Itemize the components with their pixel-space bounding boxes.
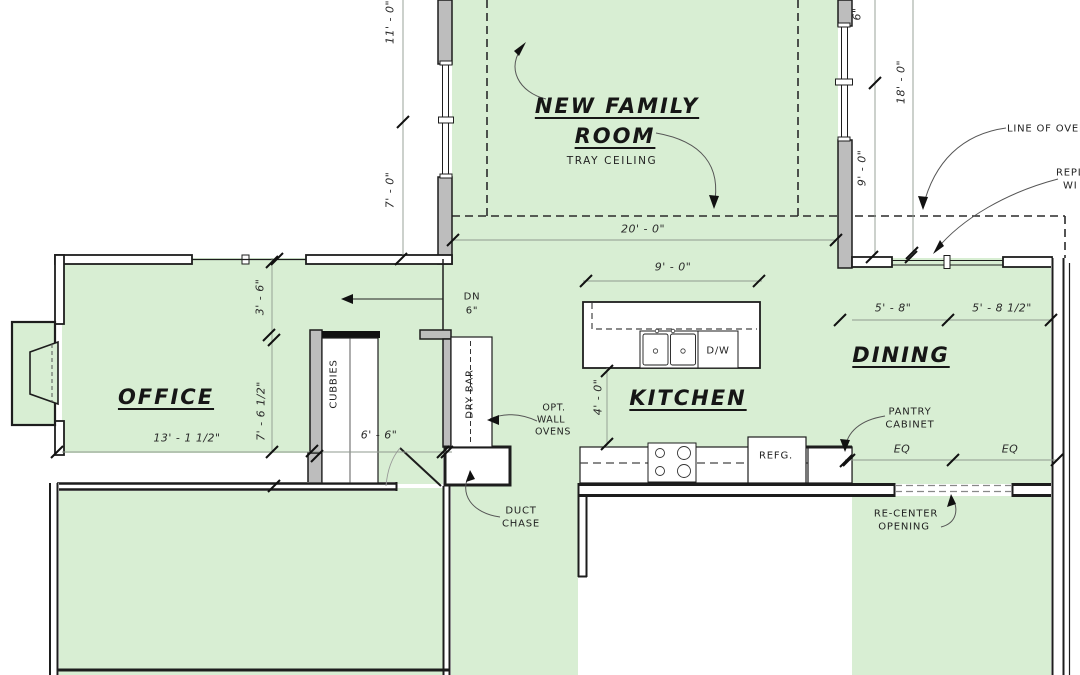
family-right-wall-lower [838,140,852,268]
dim-island-depth: 4' - 0" [592,379,605,416]
family-left-window-mullion [439,117,454,123]
faucet [671,329,675,333]
recentered-opening-dash [895,486,1012,492]
tray-ceiling-note: TRAY CEILING [567,155,658,167]
bay-fireplace [12,322,58,425]
sink-basin [671,334,696,365]
office-top-wall-left [55,255,192,264]
dim-dining-right: 5' - 8 1/2" [972,302,1032,315]
dim-office-lower: 7' - 6 1/2" [255,381,268,441]
dry-bar-label: DRY BAR [465,369,476,419]
dining-label: DINING [852,343,949,367]
wall-ovens-label-1: OPT. [542,403,565,414]
dim-office-upper: 3' - 6" [254,279,267,316]
drybar-top-wall [420,330,451,339]
window-cap [440,61,452,65]
window-cap [838,137,850,141]
dishwasher-label: D/W [706,346,729,357]
arrowhead [918,196,928,210]
duct-chase-box [445,447,510,485]
replace-label-1: REPL [1056,168,1080,179]
wall-ovens-label-2: WALL [537,415,565,426]
kitchen-label: KITCHEN [629,386,746,410]
down-size: 6" [466,306,479,317]
dim-left-upper: 11' - 0" [384,0,397,44]
dim-right-top-partial: 6" [851,7,864,20]
window-cap [440,174,452,178]
pantry-label-2: CABINET [885,420,934,431]
family-room-label-2: ROOM [575,124,656,148]
dim-island-width: 9' - 0" [655,261,692,274]
dining-top-wall-left [852,257,892,267]
faucet [655,329,659,333]
overhang-label: LINE OF OVER [1007,124,1080,135]
replace-leader [936,179,1058,250]
office-label: OFFICE [118,385,214,409]
office-south-cavity [62,453,315,484]
below-kitchen-area [587,496,852,675]
refrigerator-label: REFG. [759,451,793,462]
overhang-leader [923,128,1006,207]
fireplace [30,342,58,404]
family-room-label-1: NEW FAMILY [535,94,699,118]
sink-basin [643,334,668,365]
recenter-label-1: RE-CENTER [874,509,938,520]
dining-window-mullion [944,256,950,269]
office-top-wall-right [306,255,452,264]
office-left-wall-upper [55,255,64,324]
dim-right-lower: 9' - 0" [856,150,869,187]
dim-dining-left: 5' - 8" [875,302,912,315]
family-left-wall-upper [438,0,452,64]
recenter-label-2: OPENING [878,522,929,533]
dim-right-side: 18' - 0" [895,60,908,104]
down-label: DN [464,292,481,303]
dim-left-lower: 7' - 0" [384,172,397,209]
dim-eq-left: EQ [894,443,911,456]
dim-office-width: 13' - 1 1/2" [153,432,220,445]
lower-left-room-floor [59,488,443,675]
family-left-wall-lower [438,177,452,264]
dim-eq-right: EQ [1002,443,1019,456]
replace-label-2: WI [1063,181,1077,192]
pantry-label-1: PANTRY [888,407,931,418]
dining-top-wall-right [1003,257,1052,267]
window-cap [838,23,850,27]
cubbies-shelf [322,331,380,338]
duct-chase-label-2: CHASE [502,519,540,530]
cubbies-label: CUBBIES [329,359,340,408]
dim-family-width: 20' - 0" [621,223,665,236]
dim-mud-width: 6' - 6" [361,429,398,442]
family-right-window-mullion [836,79,853,85]
floor-plan: NEW FAMILY ROOM TRAY CEILING OFFICE KITC… [0,0,1080,675]
drybar-left-wall [443,339,451,447]
wall-ovens-label-3: OVENS [535,427,571,438]
duct-chase-label-1: DUCT [505,506,536,517]
